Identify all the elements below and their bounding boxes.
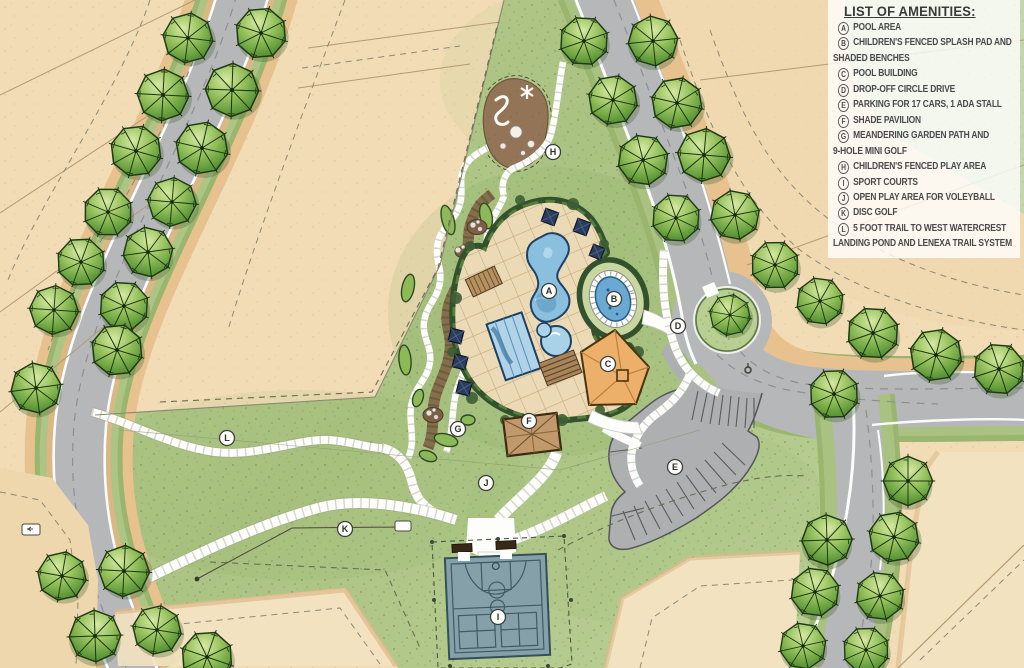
svg-text:I: I	[497, 612, 500, 622]
svg-text:H: H	[550, 147, 557, 157]
svg-text:J: J	[483, 478, 488, 488]
svg-text:B: B	[611, 294, 618, 304]
svg-text:A: A	[546, 286, 553, 296]
svg-text:D: D	[675, 321, 682, 331]
svg-text:K: K	[342, 524, 349, 534]
svg-text:E: E	[672, 462, 678, 472]
svg-text:F: F	[526, 416, 532, 426]
svg-text:C: C	[605, 359, 612, 369]
svg-text:L: L	[224, 433, 230, 443]
svg-text:G: G	[454, 424, 461, 434]
